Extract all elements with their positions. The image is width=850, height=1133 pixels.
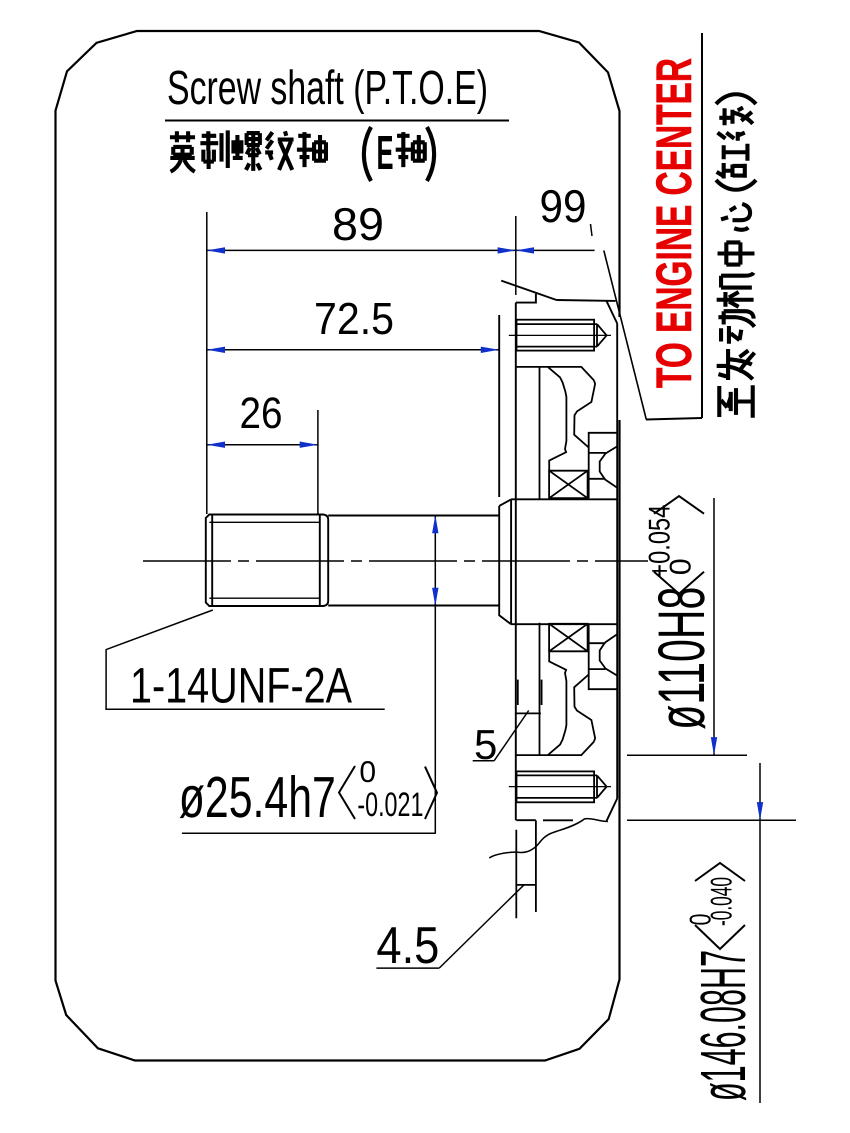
svg-text:99: 99 bbox=[540, 180, 587, 232]
svg-text:72.5: 72.5 bbox=[314, 293, 394, 344]
svg-text:ø146.08H7: ø146.08H7 bbox=[687, 950, 759, 1101]
svg-text:1-14UNF-2A: 1-14UNF-2A bbox=[130, 658, 353, 714]
svg-text:Screw shaft (P.T.O.E): Screw shaft (P.T.O.E) bbox=[167, 62, 488, 115]
svg-text:TO ENGINE CENTER: TO ENGINE CENTER bbox=[646, 58, 702, 388]
svg-text:4.5: 4.5 bbox=[376, 917, 439, 975]
svg-text:-0.040: -0.040 bbox=[706, 877, 739, 926]
svg-text:26: 26 bbox=[240, 389, 283, 438]
svg-text:0: 0 bbox=[665, 558, 698, 575]
svg-text:ø110H8: ø110H8 bbox=[644, 587, 718, 730]
svg-text:ø25.4h7: ø25.4h7 bbox=[179, 765, 336, 830]
svg-text:0: 0 bbox=[359, 756, 376, 789]
svg-text:-0.021: -0.021 bbox=[357, 786, 423, 824]
svg-text:E: E bbox=[377, 127, 394, 180]
svg-text:89: 89 bbox=[332, 198, 384, 250]
